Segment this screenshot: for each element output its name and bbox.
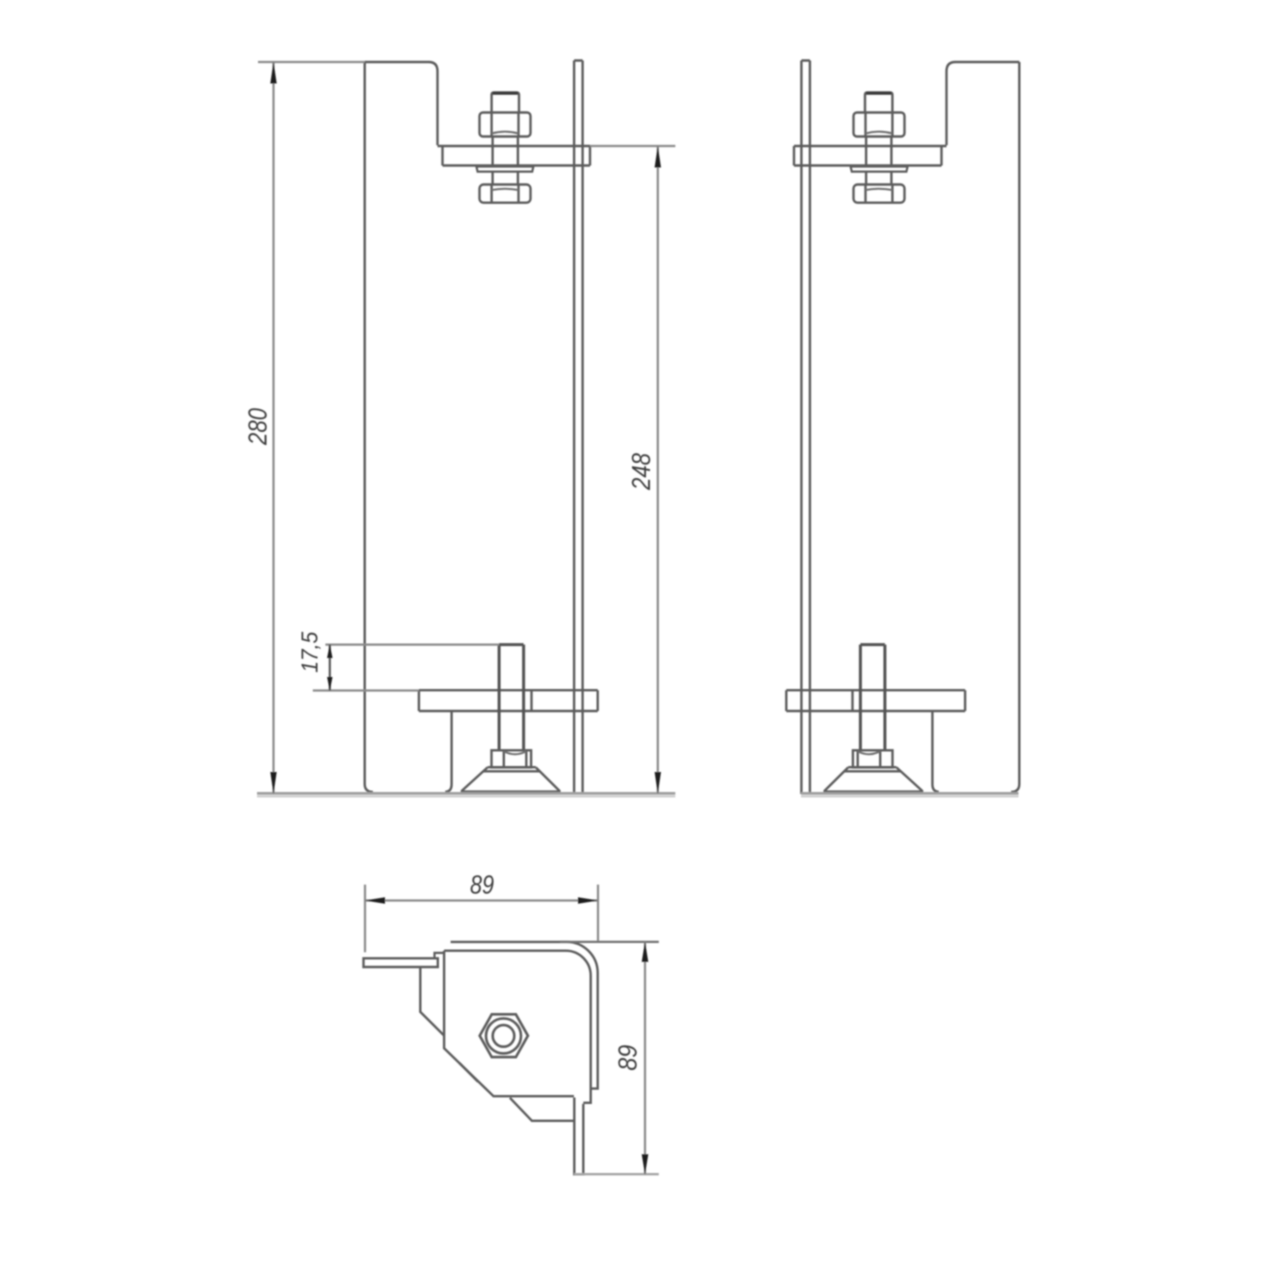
svg-text:17,5: 17,5 [297, 632, 323, 673]
svg-text:89: 89 [470, 870, 494, 900]
svg-text:280: 280 [243, 408, 273, 446]
svg-text:89: 89 [613, 1045, 643, 1071]
svg-text:248: 248 [626, 453, 656, 491]
